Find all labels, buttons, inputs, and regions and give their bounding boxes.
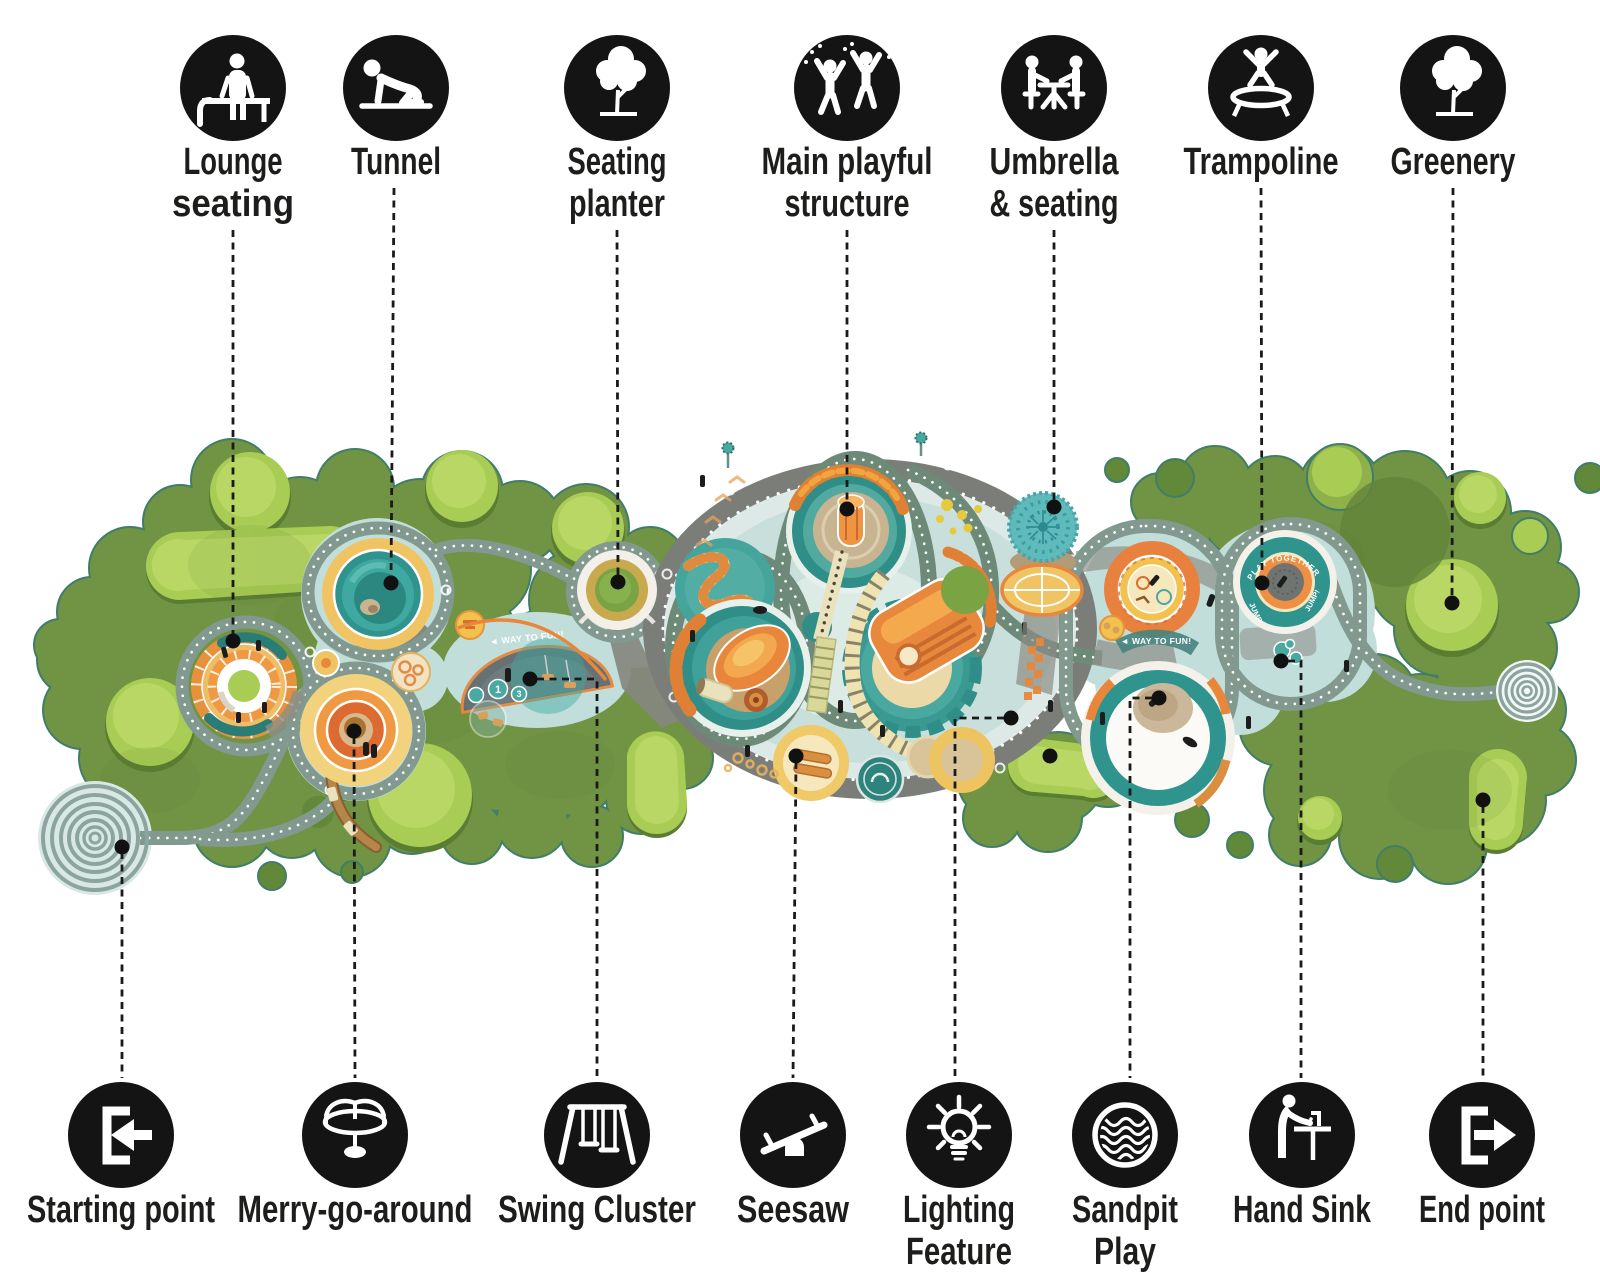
svg-text:planter: planter xyxy=(569,183,665,225)
svg-text:Seesaw: Seesaw xyxy=(737,1189,849,1231)
svg-text:Lounge: Lounge xyxy=(184,141,283,183)
svg-text:seating: seating xyxy=(172,183,294,225)
svg-text:◄ WAY TO FUN!: ◄ WAY TO FUN! xyxy=(1120,636,1191,646)
svg-text:Hand Sink: Hand Sink xyxy=(1233,1189,1372,1231)
svg-text:Lighting: Lighting xyxy=(903,1189,1015,1231)
svg-text:Swing Cluster: Swing Cluster xyxy=(498,1189,696,1231)
svg-text:Feature: Feature xyxy=(906,1231,1012,1273)
svg-text:& seating: & seating xyxy=(990,183,1119,225)
svg-text:Trampoline: Trampoline xyxy=(1184,141,1339,183)
svg-text:Play: Play xyxy=(1094,1231,1156,1273)
svg-text:Merry-go-around: Merry-go-around xyxy=(238,1189,473,1231)
svg-text:Main playful: Main playful xyxy=(762,141,933,183)
svg-text:Starting point: Starting point xyxy=(27,1189,215,1231)
svg-text:3: 3 xyxy=(516,689,521,699)
svg-text:Greenery: Greenery xyxy=(1391,141,1516,183)
svg-text:Seating: Seating xyxy=(568,141,667,183)
svg-text:Umbrella: Umbrella xyxy=(990,141,1120,183)
svg-text:Sandpit: Sandpit xyxy=(1072,1189,1178,1231)
svg-text:Tunnel: Tunnel xyxy=(351,141,441,183)
svg-text:1: 1 xyxy=(495,684,501,696)
svg-text:structure: structure xyxy=(785,183,910,225)
svg-text:End point: End point xyxy=(1419,1189,1545,1231)
